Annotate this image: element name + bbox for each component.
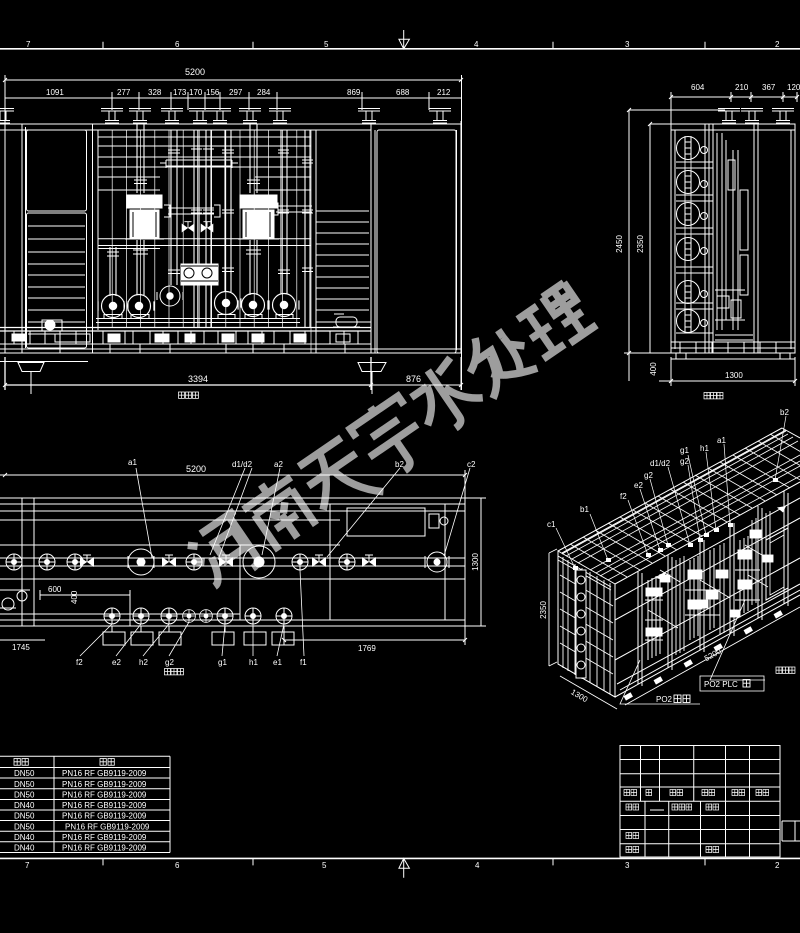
- svg-text:1769: 1769: [358, 644, 376, 653]
- svg-text:DN40: DN40: [14, 801, 35, 810]
- svg-text:PN16 RF GB9119-2009: PN16 RF GB9119-2009: [62, 791, 147, 800]
- svg-text:210: 210: [735, 83, 749, 92]
- svg-text:1745: 1745: [12, 643, 30, 652]
- svg-text:367: 367: [762, 83, 776, 92]
- svg-text:5: 5: [322, 861, 327, 870]
- svg-text:297: 297: [229, 88, 243, 97]
- svg-text:3: 3: [625, 861, 630, 870]
- svg-text:h1: h1: [249, 658, 258, 667]
- svg-text:6: 6: [175, 861, 180, 870]
- svg-text:170: 170: [189, 88, 203, 97]
- svg-text:g2: g2: [680, 457, 689, 466]
- svg-text:f2: f2: [76, 658, 83, 667]
- svg-text:PO2: PO2: [656, 695, 673, 704]
- svg-text:DN50: DN50: [14, 791, 35, 800]
- svg-text:e1: e1: [273, 658, 282, 667]
- svg-text:5200: 5200: [186, 464, 206, 474]
- svg-text:b2: b2: [395, 460, 404, 469]
- svg-text:5: 5: [324, 40, 329, 49]
- svg-text:PO2 PLC: PO2 PLC: [704, 680, 738, 689]
- svg-text:4: 4: [475, 861, 480, 870]
- svg-text:DN50: DN50: [14, 780, 35, 789]
- svg-text:173: 173: [173, 88, 187, 97]
- svg-text:DN50: DN50: [14, 812, 35, 821]
- svg-text:DN50: DN50: [14, 769, 35, 778]
- svg-text:d1/d2: d1/d2: [232, 460, 253, 469]
- svg-text:b1: b1: [580, 505, 589, 514]
- svg-text:7: 7: [25, 861, 30, 870]
- svg-text:g1: g1: [680, 446, 689, 455]
- svg-text:c2: c2: [467, 460, 476, 469]
- svg-text:1091: 1091: [46, 88, 64, 97]
- svg-text:400: 400: [649, 362, 658, 376]
- svg-text:688: 688: [396, 88, 410, 97]
- svg-text:7: 7: [26, 40, 31, 49]
- svg-text:120: 120: [787, 83, 800, 92]
- svg-text:PN16 RF GB9119-2009: PN16 RF GB9119-2009: [62, 769, 147, 778]
- svg-text:DN50: DN50: [14, 822, 35, 831]
- svg-text:876: 876: [406, 374, 421, 384]
- svg-text:2: 2: [775, 40, 780, 49]
- svg-text:g2: g2: [644, 471, 653, 480]
- svg-text:2450: 2450: [615, 235, 624, 253]
- svg-text:2350: 2350: [539, 601, 548, 619]
- svg-text:PN16 RF GB9119-2009: PN16 RF GB9119-2009: [62, 844, 147, 853]
- svg-text:PN16 RF GB9119-2009: PN16 RF GB9119-2009: [62, 801, 147, 810]
- svg-text:6: 6: [175, 40, 180, 49]
- svg-text:328: 328: [148, 88, 162, 97]
- svg-text:2350: 2350: [636, 235, 645, 253]
- svg-text:PN16 RF GB9119-2009: PN16 RF GB9119-2009: [62, 833, 147, 842]
- svg-text:PN16 RF GB9119-2009: PN16 RF GB9119-2009: [62, 780, 147, 789]
- svg-text:g2: g2: [165, 658, 174, 667]
- svg-text:4: 4: [474, 40, 479, 49]
- svg-text:b2: b2: [780, 408, 789, 417]
- svg-text:869: 869: [347, 88, 361, 97]
- svg-text:2: 2: [775, 861, 780, 870]
- svg-text:3: 3: [625, 40, 630, 49]
- svg-text:c1: c1: [547, 520, 556, 529]
- svg-text:DN40: DN40: [14, 833, 35, 842]
- svg-text:PN16 RF GB9119-2009: PN16 RF GB9119-2009: [65, 822, 150, 831]
- svg-text:1300: 1300: [471, 553, 480, 571]
- svg-text:e2: e2: [112, 658, 121, 667]
- svg-text:a1: a1: [128, 458, 137, 467]
- svg-text:h1: h1: [700, 444, 709, 453]
- svg-text:5200: 5200: [185, 67, 205, 77]
- svg-text:277: 277: [117, 88, 131, 97]
- svg-text:1300: 1300: [725, 371, 743, 380]
- svg-text:604: 604: [691, 83, 705, 92]
- svg-text:f2: f2: [620, 492, 627, 501]
- svg-text:a1: a1: [717, 436, 726, 445]
- svg-text:3394: 3394: [188, 374, 208, 384]
- svg-text:g1: g1: [218, 658, 227, 667]
- svg-text:400: 400: [70, 590, 79, 604]
- svg-text:156: 156: [206, 88, 220, 97]
- svg-text:f1: f1: [300, 658, 307, 667]
- svg-text:600: 600: [48, 585, 62, 594]
- svg-text:PN16 RF GB9119-2009: PN16 RF GB9119-2009: [62, 812, 147, 821]
- svg-text:DN40: DN40: [14, 844, 35, 853]
- svg-text:212: 212: [437, 88, 451, 97]
- svg-text:e2: e2: [634, 481, 643, 490]
- svg-text:284: 284: [257, 88, 271, 97]
- svg-text:d1/d2: d1/d2: [650, 459, 671, 468]
- svg-text:h2: h2: [139, 658, 148, 667]
- svg-text:a2: a2: [274, 460, 283, 469]
